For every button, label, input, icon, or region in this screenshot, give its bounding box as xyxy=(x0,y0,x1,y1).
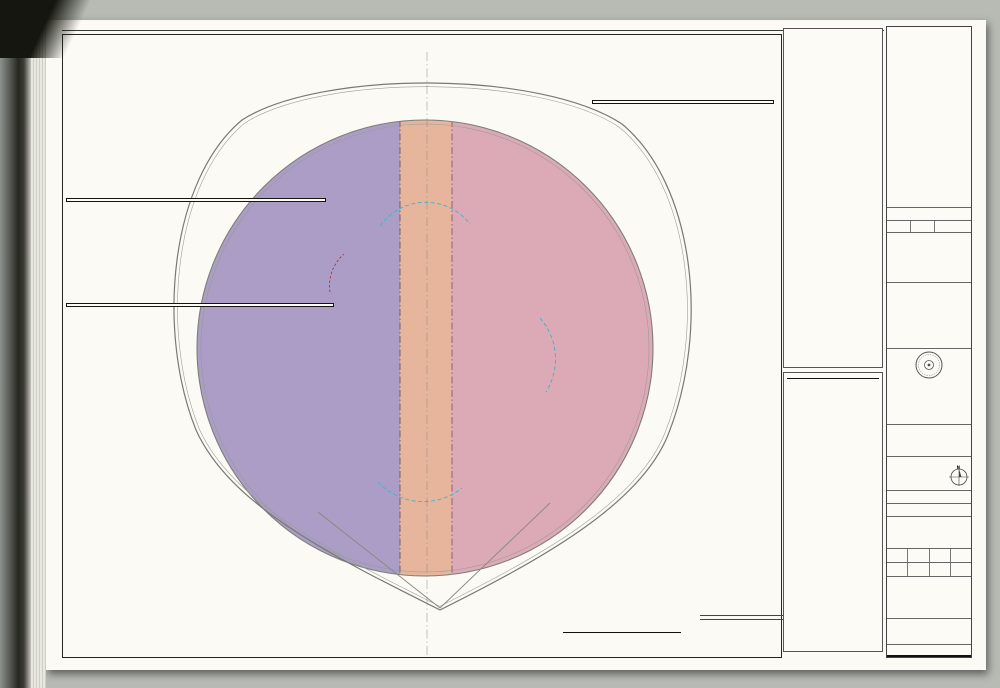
client-section xyxy=(887,233,971,283)
scale-row xyxy=(887,563,971,577)
tongji-seal xyxy=(914,350,944,380)
revision-entry xyxy=(887,208,971,221)
svg-text:N: N xyxy=(957,465,960,470)
egress-calc-column-zh xyxy=(701,33,781,35)
scanned-drawing-sheet: N xyxy=(0,0,1000,688)
title-block: N xyxy=(886,26,972,658)
core-label xyxy=(66,198,326,202)
drawing-number-section xyxy=(887,619,971,645)
revision-header xyxy=(887,221,971,233)
legend-panel xyxy=(783,372,883,652)
fire-zones xyxy=(197,120,653,576)
drawing-title-section xyxy=(887,517,971,549)
specialty-row xyxy=(887,549,971,563)
title-block-blank xyxy=(887,27,971,208)
project-number-row xyxy=(887,491,971,504)
book-binding-edge xyxy=(0,0,46,688)
design-institute-section xyxy=(887,349,971,425)
design-architect-section xyxy=(887,283,971,349)
level-info-block xyxy=(700,614,790,621)
design-consultants-section xyxy=(887,425,971,457)
subject-row xyxy=(887,504,971,517)
page-corner-shadow xyxy=(0,0,120,58)
project-title-section: N xyxy=(887,457,971,491)
release-approval-section xyxy=(887,577,971,619)
fire-zone-24-2-label xyxy=(592,100,774,104)
validity-note xyxy=(887,645,971,657)
graphic-scale-bar xyxy=(563,626,681,641)
north-arrow: N xyxy=(948,465,970,487)
firezone-egress-calculations-panel xyxy=(783,28,883,368)
fire-zone-24-1-label xyxy=(66,303,334,307)
